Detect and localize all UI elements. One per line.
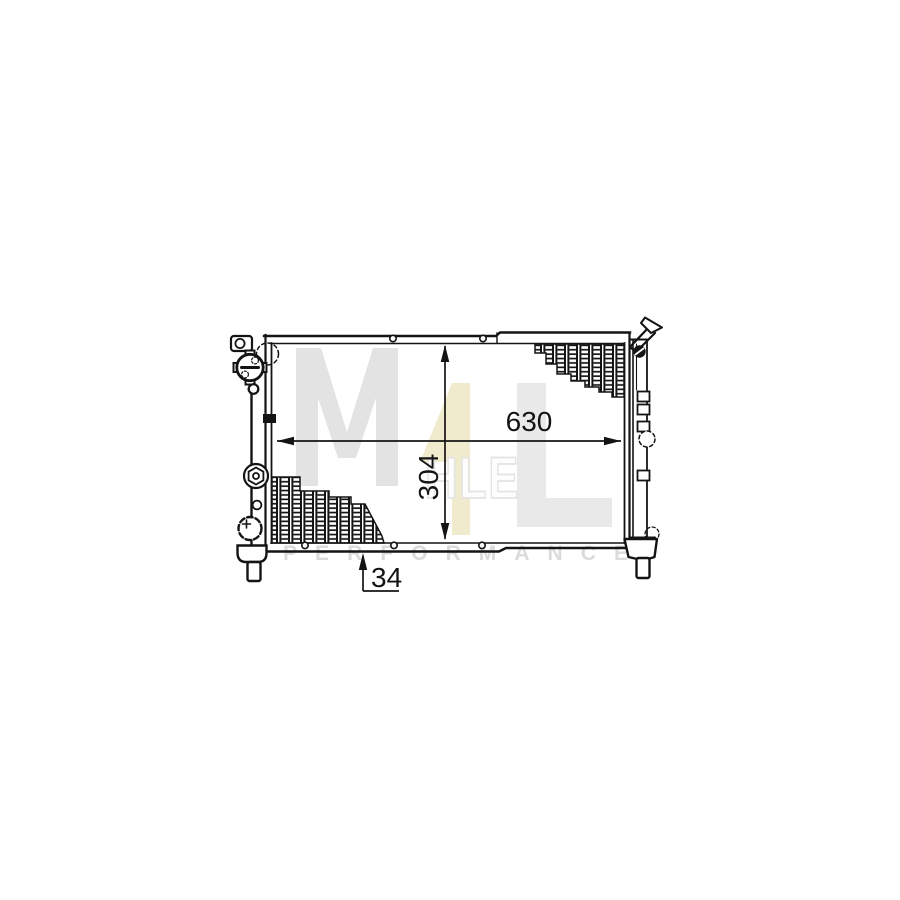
top-band-outer [264,333,630,337]
tank-clip-4 [638,471,650,481]
watermark-performance-text: PERFORMANCE [283,542,628,565]
arrowhead-down [441,523,450,540]
arrowhead-left [277,437,294,445]
arrowhead-up [441,345,450,362]
watermark-letter-l-shape [517,383,612,527]
watermark-letter-m-shape [296,348,398,486]
tank-hidden-port [639,431,655,447]
small-fitting-lower [253,501,262,510]
small-fitting-upper [249,384,259,394]
radiator-cap [234,351,267,385]
fin-area-bottom-left [272,477,384,543]
thermo-switch [239,517,262,540]
top-band-rivet-1 [390,335,396,341]
dimension-height-label: 304 [413,454,444,501]
top-band-rivet-2 [480,335,486,341]
dimension-depth-label: 34 [371,562,402,593]
bottom-band-rivet-1 [302,542,308,548]
radiator-technical-drawing: HLE PERFORMANCE [0,0,900,900]
mount-tab-left [263,414,276,423]
drain-plug [244,464,268,488]
bottom-band-rivet-2 [391,542,397,548]
tank-clip-2 [638,405,650,415]
tank-clip-1 [638,392,650,402]
fin-area-top-right [535,344,624,397]
dimension-width-label: 630 [506,406,553,437]
arrowhead-right [604,437,621,445]
tank-clip-3 [638,422,650,432]
product-image-canvas: HLE PERFORMANCE [0,0,900,900]
left-mounting-foot [238,546,267,582]
inlet-pipe [630,318,662,353]
bottom-band-rivet-3 [479,542,485,548]
